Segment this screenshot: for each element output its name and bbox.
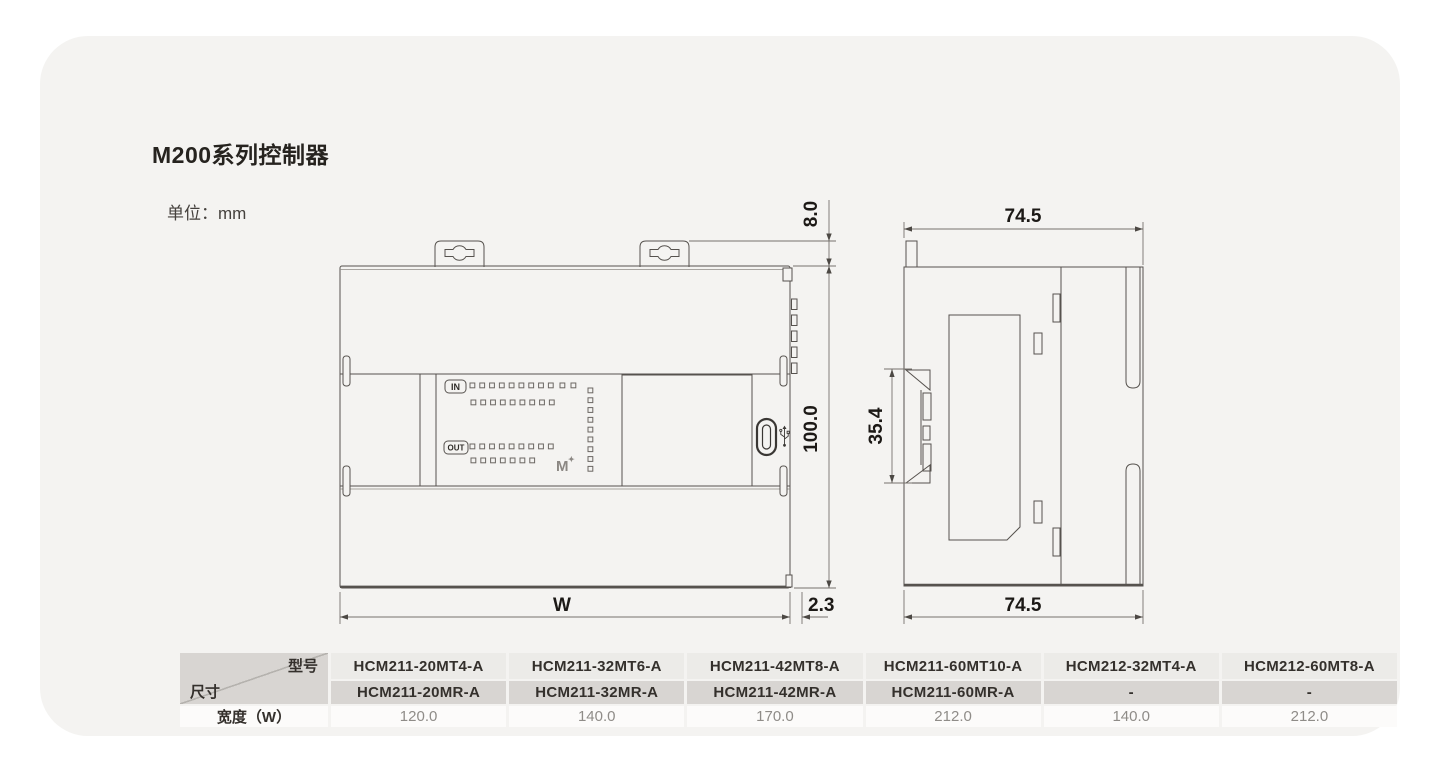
dim-tab-height: 8.0 (801, 201, 822, 227)
in-label: IN (451, 382, 460, 392)
led-row-in-1-extra (560, 383, 576, 388)
usb-icon (780, 426, 790, 447)
label-recess (949, 315, 1020, 540)
mounting-tab (435, 241, 484, 267)
content-card: M200系列控制器 单位：mm (40, 36, 1400, 736)
brand-logo: M (556, 458, 569, 475)
side-body (904, 267, 1143, 586)
unit-label: 单位：mm (167, 199, 246, 224)
model-cell: HCM211-32MT6-A (509, 653, 684, 679)
corner-label-model: 型号 (288, 655, 318, 676)
model-cell: - (1222, 681, 1397, 704)
width-value-cell: 212.0 (1222, 706, 1397, 727)
model-cell: - (1044, 681, 1219, 704)
model-cell: HCM211-32MR-A (509, 681, 684, 704)
spec-table: 型号 尺寸 HCM211-20MT4-A HCM211-32MT6-A HCM2… (180, 653, 1397, 727)
model-cell: HCM212-32MT4-A (1044, 653, 1219, 679)
model-cell: HCM211-60MR-A (866, 681, 1041, 704)
dim-body-height: 100.0 (801, 405, 822, 453)
front-body (340, 266, 790, 588)
dimension-drawing: IN OUT M ✦ (320, 186, 1200, 636)
right-channel-top (1126, 267, 1140, 388)
led-column-side (588, 388, 593, 471)
dim-side-bottom: 74.5 (904, 590, 1143, 624)
model-cell: HCM211-20MR-A (331, 681, 506, 704)
dim-rail-offset: 2.3 (808, 595, 834, 616)
led-row-out-2 (471, 458, 535, 463)
top-right-hook (783, 268, 792, 281)
width-row-label: 宽度（W） (180, 706, 328, 727)
dim-bottom: W 2.3 (340, 592, 834, 624)
led-panel: IN OUT M ✦ (444, 380, 593, 475)
right-channel-bottom (1126, 464, 1140, 586)
page: M200系列控制器 单位：mm (0, 0, 1440, 771)
side-view: 74.5 74.5 35.4 (866, 206, 1143, 624)
width-value-cell: 212.0 (866, 706, 1041, 727)
model-cell: HCM211-20MT4-A (331, 653, 506, 679)
page-title: M200系列控制器 (152, 136, 329, 170)
dim-depth-bottom: 74.5 (1005, 595, 1042, 616)
model-cell: HCM211-60MT10-A (866, 653, 1041, 679)
dim-clip-value: 35.4 (866, 407, 887, 444)
model-cell: HCM211-42MR-A (687, 681, 862, 704)
dim-clip-height: 35.4 (866, 369, 912, 483)
table-corner-cell: 型号 尺寸 (180, 653, 328, 704)
usb-c-port (757, 419, 776, 455)
brand-logo-spark: ✦ (568, 455, 575, 464)
out-label: OUT (448, 444, 465, 453)
dim-depth-top: 74.5 (1005, 206, 1042, 227)
bottom-right-hook (786, 575, 792, 587)
model-cell: HCM212-60MT8-A (1222, 653, 1397, 679)
front-view: IN OUT M ✦ (340, 200, 836, 624)
side-slots (1034, 294, 1060, 556)
vent-slits (792, 299, 798, 374)
keyhole-slot-icon (445, 246, 474, 261)
dim-right: 8.0 100.0 (689, 200, 836, 588)
led-row-in-1 (470, 383, 553, 388)
side-top-tab (906, 241, 917, 267)
width-value-cell: 140.0 (1044, 706, 1219, 727)
keyhole-slot-icon (650, 246, 679, 261)
led-row-in-2 (471, 400, 554, 405)
led-row-out-1 (470, 444, 553, 449)
din-rail-clip (906, 370, 931, 483)
edge-clips (343, 356, 787, 496)
dim-side-top: 74.5 (904, 206, 1143, 265)
width-value-cell: 140.0 (509, 706, 684, 727)
width-value-cell: 120.0 (331, 706, 506, 727)
corner-label-dim: 尺寸 (190, 681, 220, 702)
mounting-tab (640, 241, 689, 267)
width-value-cell: 170.0 (687, 706, 862, 727)
model-cell: HCM211-42MT8-A (687, 653, 862, 679)
dim-width-w: W (553, 595, 571, 616)
right-cover-block (622, 375, 752, 486)
